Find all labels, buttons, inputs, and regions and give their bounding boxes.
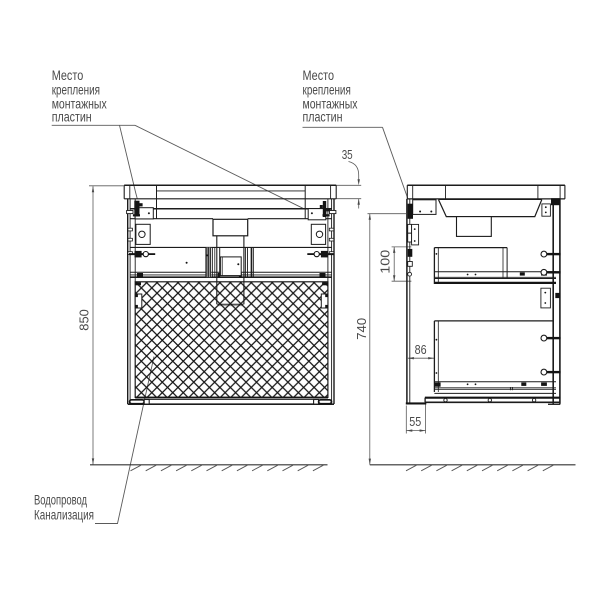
svg-text:пластин: пластин xyxy=(52,109,92,125)
svg-text:850: 850 xyxy=(77,309,92,331)
svg-text:35: 35 xyxy=(342,147,353,162)
svg-text:пластин: пластин xyxy=(303,109,343,125)
svg-text:Водопровод: Водопровод xyxy=(34,492,87,508)
svg-text:100: 100 xyxy=(378,250,393,274)
svg-text:Канализация: Канализация xyxy=(34,507,94,523)
svg-text:86: 86 xyxy=(415,342,427,357)
svg-text:740: 740 xyxy=(354,318,369,340)
svg-text:55: 55 xyxy=(409,414,421,429)
